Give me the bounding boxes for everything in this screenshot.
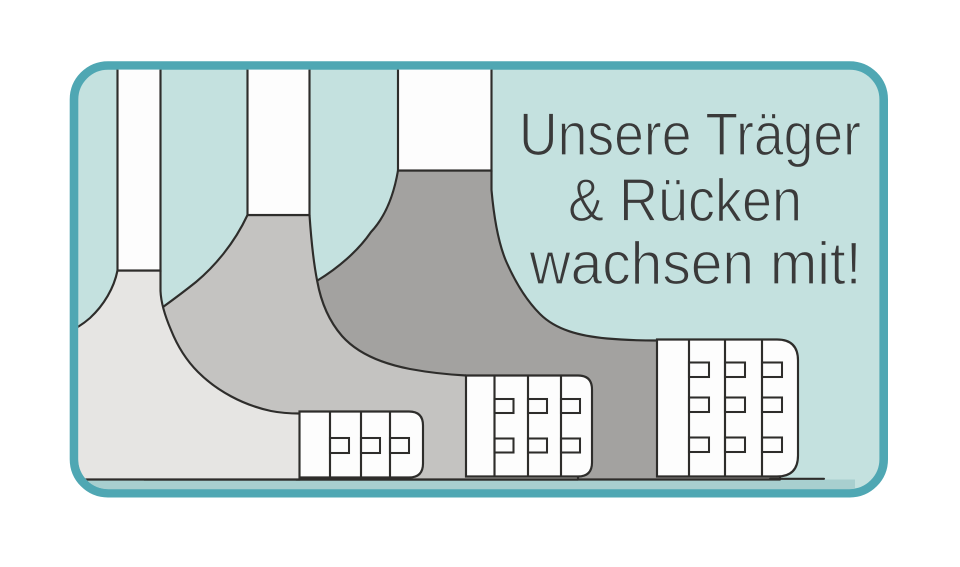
svg-text:wachsen mit!: wachsen mit! (529, 229, 862, 297)
svg-text:& Rücken: & Rücken (568, 166, 802, 234)
svg-text:Unsere Träger: Unsere Träger (519, 100, 861, 168)
